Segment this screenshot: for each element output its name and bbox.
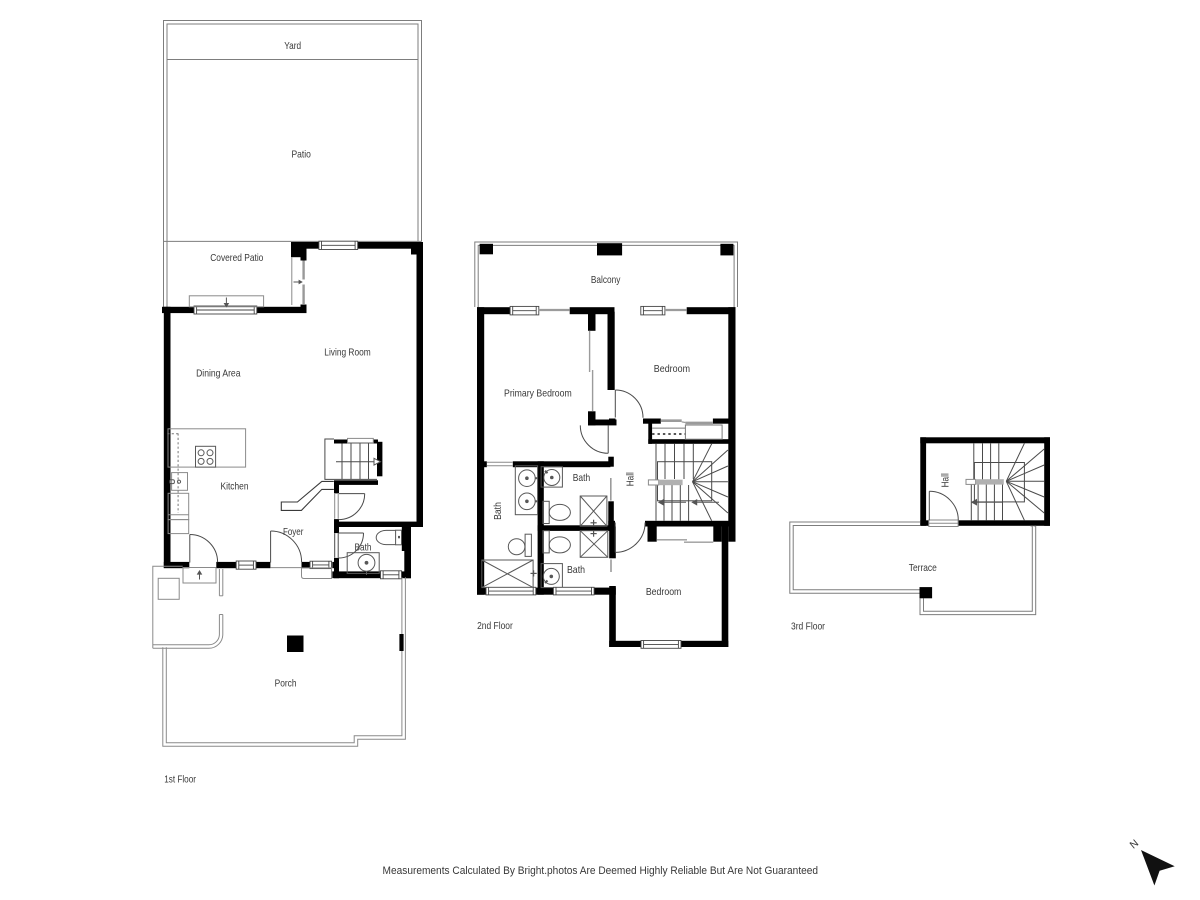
svg-text:Bath: Bath xyxy=(355,542,372,554)
svg-text:Porch: Porch xyxy=(275,678,297,690)
svg-text:1st Floor: 1st Floor xyxy=(164,774,196,786)
svg-text:3rd Floor: 3rd Floor xyxy=(791,621,825,633)
svg-text:Bath: Bath xyxy=(567,564,585,576)
svg-text:Hall: Hall xyxy=(939,473,951,487)
svg-text:Bath: Bath xyxy=(573,472,591,484)
svg-text:Measurements Calculated By Bri: Measurements Calculated By Bright.photos… xyxy=(383,865,819,877)
svg-text:Foyer: Foyer xyxy=(283,526,304,538)
svg-text:Dining Area: Dining Area xyxy=(196,367,241,379)
svg-text:Living Room: Living Room xyxy=(324,347,371,359)
svg-text:Balcony: Balcony xyxy=(591,274,621,286)
svg-text:Bath: Bath xyxy=(492,502,504,520)
svg-text:Bedroom: Bedroom xyxy=(654,363,690,375)
svg-text:2nd Floor: 2nd Floor xyxy=(477,620,513,632)
svg-text:Hall: Hall xyxy=(625,472,637,486)
svg-text:Primary Bedroom: Primary Bedroom xyxy=(504,388,572,400)
svg-text:Kitchen: Kitchen xyxy=(221,481,249,493)
svg-text:Covered Patio: Covered Patio xyxy=(210,252,263,264)
svg-text:Yard: Yard xyxy=(284,40,301,52)
svg-text:Terrace: Terrace xyxy=(909,562,937,574)
svg-text:Patio: Patio xyxy=(292,148,312,160)
svg-text:Bedroom: Bedroom xyxy=(646,586,682,598)
